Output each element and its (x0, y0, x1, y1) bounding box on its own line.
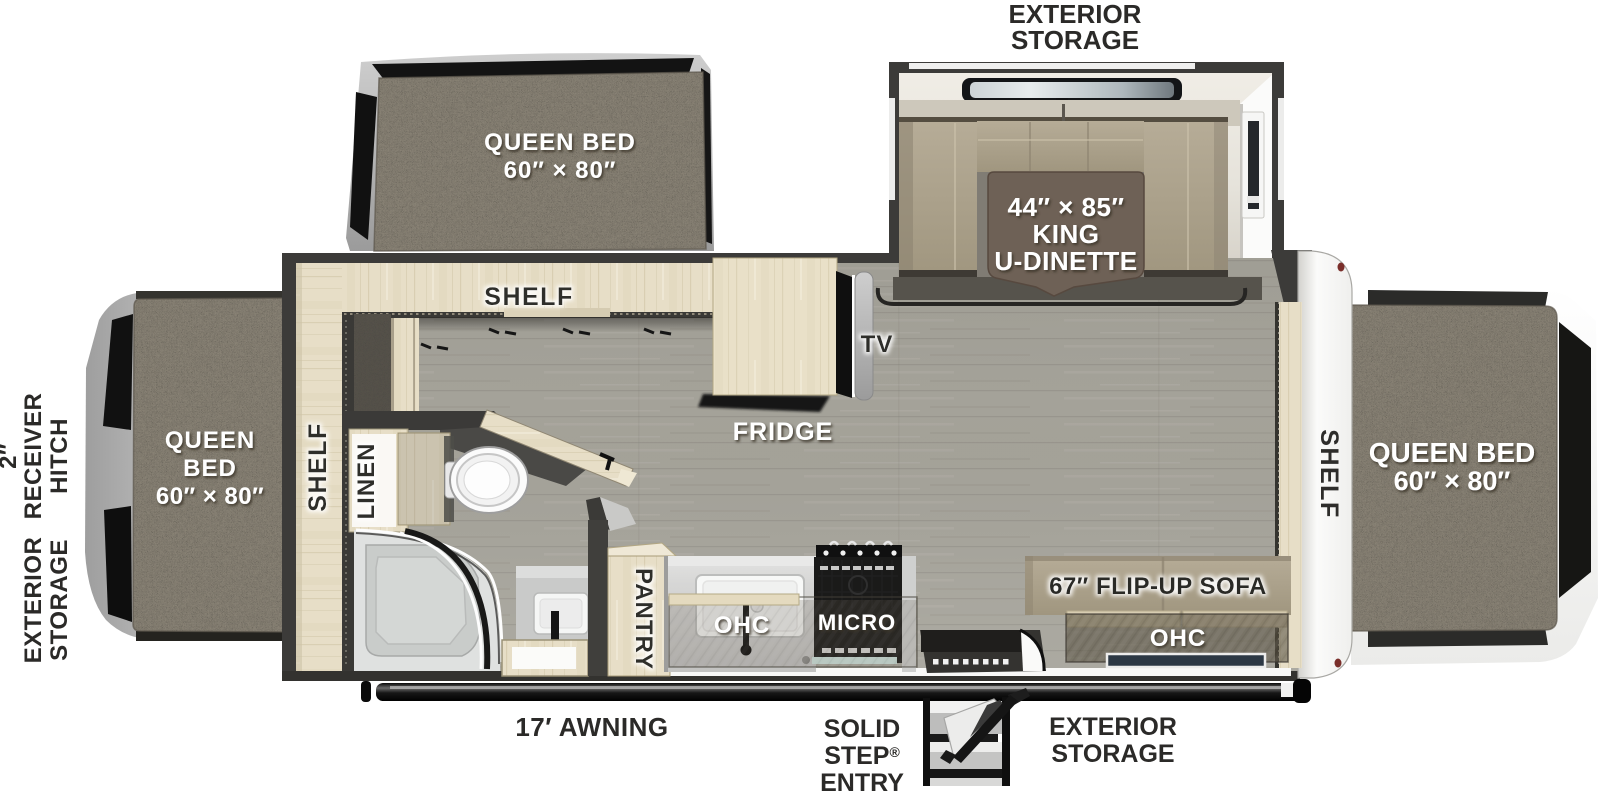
svg-text:2″: 2″ (0, 443, 22, 469)
svg-text:ENTRY: ENTRY (820, 769, 904, 796)
svg-text:PANTRY: PANTRY (630, 568, 657, 670)
svg-text:OHC: OHC (1150, 625, 1206, 652)
svg-text:SHELF: SHELF (304, 422, 332, 511)
svg-text:U-DINETTE: U-DINETTE (994, 246, 1137, 276)
svg-text:STORAGE: STORAGE (1011, 25, 1139, 55)
svg-text:LINEN: LINEN (353, 443, 380, 520)
svg-text:STORAGE: STORAGE (46, 539, 73, 661)
svg-text:QUEEN BED: QUEEN BED (484, 129, 636, 156)
svg-text:TV: TV (861, 331, 894, 358)
svg-text:60″ × 80″: 60″ × 80″ (504, 157, 617, 184)
svg-text:BED: BED (183, 455, 237, 482)
svg-text:MICRO: MICRO (818, 610, 896, 635)
svg-text:SHELF: SHELF (1315, 429, 1343, 518)
svg-text:67″ FLIP-UP SOFA: 67″ FLIP-UP SOFA (1049, 573, 1267, 600)
svg-text:RECEIVER: RECEIVER (20, 393, 47, 520)
svg-text:17′ AWNING: 17′ AWNING (515, 712, 668, 742)
svg-text:SOLID: SOLID (824, 715, 900, 743)
svg-text:60″ × 80″: 60″ × 80″ (156, 483, 264, 510)
svg-text:STORAGE: STORAGE (1051, 740, 1174, 768)
svg-text:HITCH: HITCH (46, 418, 73, 494)
svg-text:OHC: OHC (714, 612, 770, 639)
svg-text:STEP®: STEP® (824, 742, 900, 770)
svg-text:QUEEN BED: QUEEN BED (1369, 437, 1535, 468)
svg-text:60″ × 80″: 60″ × 80″ (1394, 466, 1511, 496)
svg-text:EXTERIOR: EXTERIOR (20, 537, 47, 664)
svg-text:EXTERIOR: EXTERIOR (1049, 713, 1177, 741)
svg-text:QUEEN: QUEEN (165, 427, 255, 454)
svg-text:FRIDGE: FRIDGE (733, 418, 833, 446)
svg-text:44″ × 85″: 44″ × 85″ (1008, 192, 1125, 222)
svg-text:SHELF: SHELF (484, 283, 573, 311)
svg-text:KING: KING (1033, 219, 1100, 249)
